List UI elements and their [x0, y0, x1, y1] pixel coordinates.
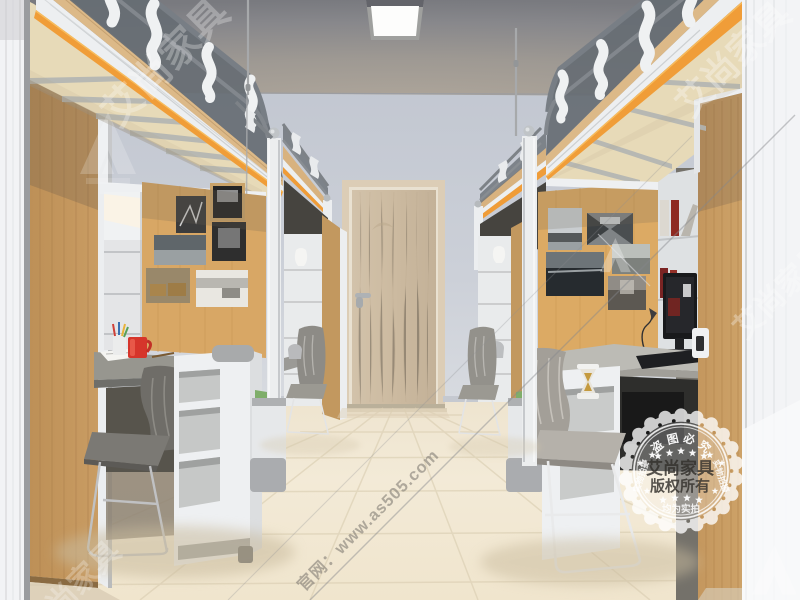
svg-text:版权所有: 版权所有: [650, 477, 710, 495]
svg-text:艾尚家具: 艾尚家具: [646, 458, 714, 478]
svg-text:均为实拍: 均为实拍: [662, 503, 700, 515]
